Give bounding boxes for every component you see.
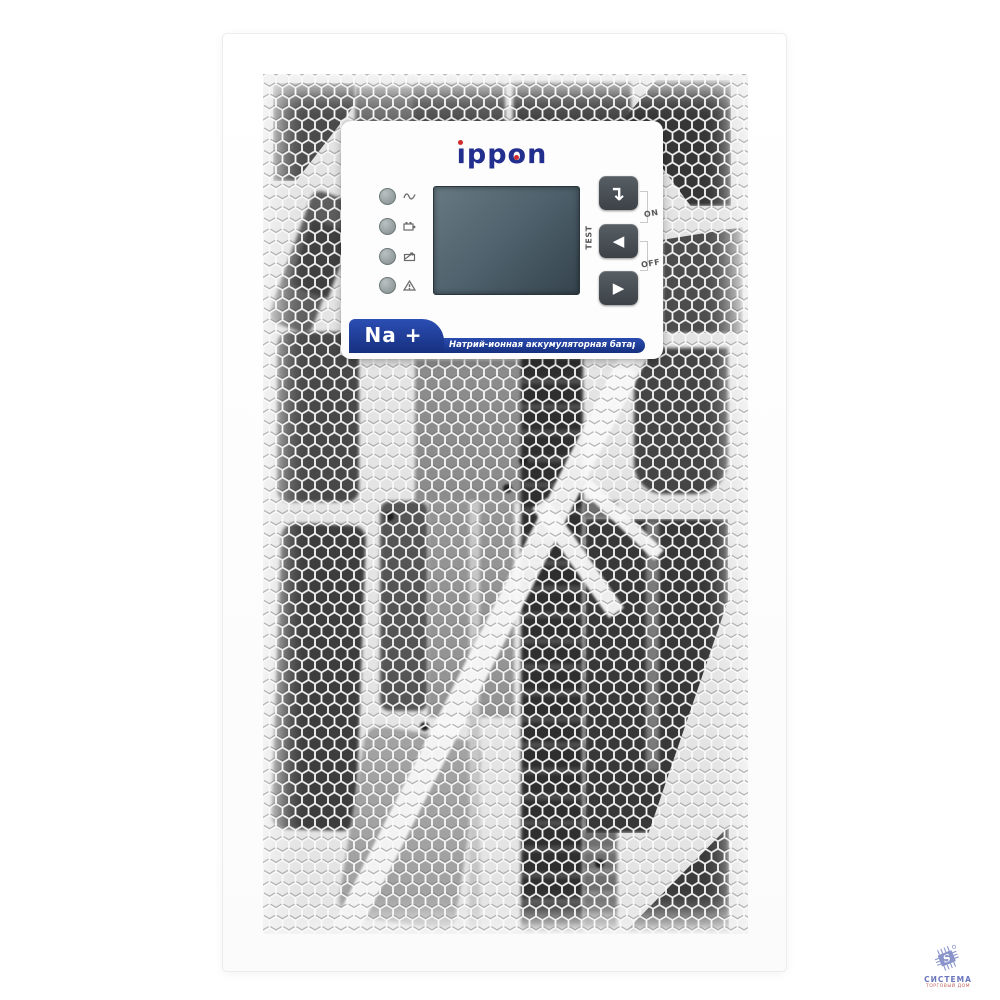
bypass-icon bbox=[403, 250, 416, 263]
enter-button[interactable]: ↵ bbox=[599, 176, 638, 210]
label-test: TEST bbox=[585, 218, 594, 258]
watermark-logo: S СИСТЕМА ТОРГОВЫЙ ДОМ bbox=[905, 944, 991, 990]
sine-wave-icon bbox=[403, 190, 416, 203]
label-on: ON bbox=[643, 208, 659, 219]
warning-icon bbox=[403, 279, 416, 292]
up-button[interactable]: ◀ bbox=[599, 224, 638, 258]
down-arrow-icon: ▶ bbox=[613, 281, 625, 296]
label-off: OFF bbox=[640, 257, 661, 269]
na-plus-badge: Na + bbox=[349, 319, 444, 353]
control-panel: ıppon ↵ ◀ ▶ bbox=[341, 121, 663, 359]
brand-logo: ıppon bbox=[341, 141, 663, 168]
up-arrow-icon: ◀ bbox=[613, 234, 625, 249]
watermark-subtitle: ТОРГОВЫЙ ДОМ bbox=[905, 984, 991, 990]
lcd-display bbox=[433, 186, 580, 295]
ups-device: ıppon ↵ ◀ ▶ bbox=[222, 33, 787, 972]
battery-icon bbox=[403, 220, 416, 233]
led-line-mode bbox=[379, 188, 396, 205]
led-battery-mode bbox=[379, 218, 396, 235]
down-button[interactable]: ▶ bbox=[599, 271, 638, 305]
brand-letters: ppon bbox=[467, 139, 547, 170]
led-fault bbox=[379, 277, 396, 294]
brand-letter-i: ı bbox=[457, 139, 467, 170]
led-bypass-mode bbox=[379, 248, 396, 265]
banner-description: Натрий-ионная аккумуляторная батарея bbox=[449, 338, 635, 353]
enter-icon: ↵ bbox=[608, 185, 628, 202]
na-plus-label: Na + bbox=[349, 323, 438, 347]
logo-red-dot bbox=[514, 155, 519, 160]
